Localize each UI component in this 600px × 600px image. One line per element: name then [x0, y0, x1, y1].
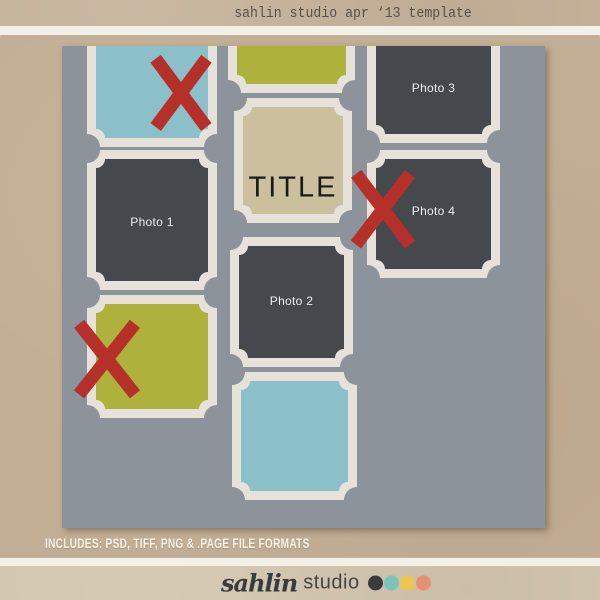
sahlin-template-preview: sahlin studio apr ‘13 template Photo 3TI…: [0, 0, 600, 600]
frame-green-top-shape: [228, 46, 355, 93]
logo-dot-charcoal: [368, 576, 383, 591]
logo-script-text: sahlin: [221, 569, 297, 598]
frame-photo-1: Photo 1: [87, 150, 217, 290]
formats-text: INCLUDES: PSD, TIFF, PNG & .PAGE FILE FO…: [45, 535, 413, 551]
logo-dot-salmon: [416, 576, 431, 591]
logo-dot-yellow: [400, 576, 415, 591]
template-canvas: Photo 3TITLEPhoto 1Photo 4Photo 2: [62, 46, 545, 528]
frame-blue-bottom: [232, 372, 357, 500]
frame-photo-2-label: Photo 2: [230, 294, 353, 308]
frame-title: TITLE: [234, 98, 352, 223]
frame-photo-3-label: Photo 3: [367, 81, 500, 95]
frame-blue-bottom-shape: [232, 372, 357, 500]
top-divider: [0, 26, 600, 36]
x-mark-right: [355, 173, 410, 245]
x-mark-bottom-left: [78, 323, 135, 395]
x-mark-top: [155, 58, 207, 128]
bottom-divider: [0, 557, 600, 566]
logo-sans-text: studio: [303, 572, 359, 595]
logo-dots: [368, 576, 432, 591]
formats-text-value: INCLUDES: PSD, TIFF, PNG & .PAGE FILE FO…: [45, 535, 310, 551]
frame-photo-3: Photo 3: [367, 46, 500, 143]
frame-photo-1-label: Photo 1: [87, 215, 217, 229]
footer-band: sahlin studio: [0, 566, 600, 600]
frame-title-label: TITLE: [234, 172, 352, 205]
header-title: sahlin studio apr ‘13 template: [0, 0, 600, 26]
sahlin-studio-logo: sahlin studio: [221, 569, 432, 598]
logo-dot-teal: [384, 576, 399, 591]
frame-green-top: [228, 46, 355, 93]
header-title-text: sahlin studio apr ‘13 template: [234, 0, 472, 28]
frame-photo-2: Photo 2: [230, 237, 353, 367]
header-band: sahlin studio apr ‘13 template: [0, 0, 600, 26]
